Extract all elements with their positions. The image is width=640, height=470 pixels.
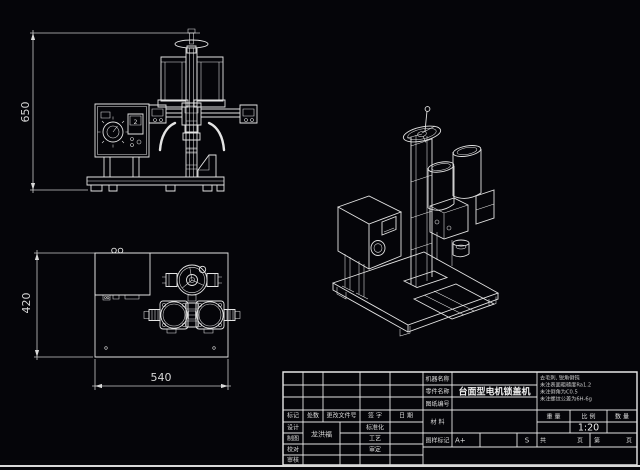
sheet-bottom-border [0,465,640,467]
designer-name: 龙洪福 [311,430,332,439]
note-line-4: 未注螺纹公差为6H-6g [540,395,592,403]
label-design: 设计 [287,424,299,432]
iso-motors [427,144,481,211]
cad-canvas: 650 2 [0,0,640,470]
title-block: 标记 处数 更改文件号 签 字 日 期 设计 制图 校对 审核 龙洪福 标准化 … [283,372,637,465]
label-signature: 签 字 [368,412,382,420]
label-process: 工艺 [369,435,381,443]
label-machine-name: 机器名称 [425,375,449,383]
label-page2: 页 [626,438,632,445]
label-drawing-no: 图纸编号 [425,400,449,408]
label-date: 日 期 [399,412,413,420]
plan-view: 420 540 [20,248,240,390]
right-handle [209,123,224,150]
label-weight: 重 量 [547,413,561,421]
column-front [186,48,197,177]
label-check: 校对 [287,446,299,454]
lower-column-front [186,148,216,177]
label-scale: 比 例 [582,413,596,421]
label-review: 审核 [287,456,299,464]
control-display-value: 2 [134,119,138,126]
capping-heads-plan [144,301,240,333]
plan-width-dimension: 540 [92,359,231,390]
base-plate-plan [95,248,228,357]
plan-depth-dim-text: 420 [20,293,33,314]
scale-value: 1:20 [578,423,599,434]
label-stamp: 图样标记 [425,437,449,445]
label-ordinal: 第 [594,437,600,445]
handwheel-plan [162,265,222,301]
stamp-a-value: A+ [455,437,466,445]
technical-notes: 去毛刺, 锐角倒钝 未注表面粗糙度Ra1.2 未注倒角为C0.5 未注螺纹公差为… [540,374,592,403]
control-box-front: 2 [95,104,149,177]
label-approve: 审定 [369,446,381,454]
label-part-name: 零件名称 [425,388,449,396]
front-elevation-view: 650 2 [19,29,257,193]
plan-width-dim-text: 540 [151,371,172,384]
isometric-view [333,107,498,336]
front-height-dim-text: 650 [19,102,32,123]
label-total: 共 [540,437,546,445]
label-draft: 制图 [287,435,299,443]
note-line-2: 未注表面粗糙度Ra1.2 [540,381,591,389]
machine-base-front [87,177,224,191]
note-line-3: 未注倒角为C0.5 [540,388,578,396]
label-count: 处数 [307,412,319,420]
left-handle [160,123,175,150]
stamp-s-value: S [525,437,530,445]
label-page1: 页 [577,438,583,445]
label-change-doc: 更改文件号 [326,412,356,420]
label-mark: 标记 [287,412,299,420]
iso-handwheel [402,107,442,145]
label-material: 材 料 [431,418,445,426]
front-height-dimension: 650 [19,30,200,193]
note-line-1: 去毛刺, 锐角倒钝 [540,374,580,382]
motors-front [158,57,225,107]
side-arm-front [149,103,257,150]
plan-depth-dimension: 420 [20,250,126,360]
cad-drawing-sheet: 650 2 [0,0,640,470]
iso-gearbox [430,190,494,266]
label-quantity: 数 量 [615,413,629,421]
part-name-value: 台面型电机锁盖机 [458,386,530,398]
label-standardize: 标准化 [366,424,384,432]
iso-control-box [338,196,401,299]
